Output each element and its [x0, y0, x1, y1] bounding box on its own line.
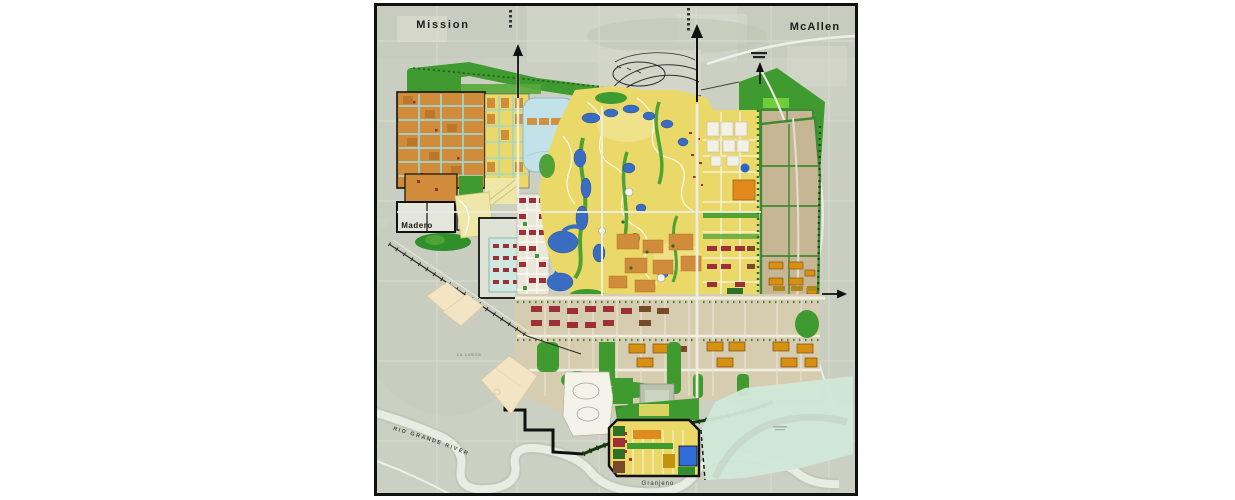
- granjeno-district: Granjeno: [609, 398, 699, 487]
- master-plan-map: RIO GRANDE RIVER: [377, 6, 855, 493]
- page: RIO GRANDE RIVER: [0, 0, 1235, 500]
- la-lomita-label: La Lomita: [457, 352, 481, 357]
- illegible-road-label: [751, 52, 767, 54]
- mission-label: Mission: [416, 19, 470, 31]
- east-grid-district: [703, 110, 759, 306]
- central-residential-village: [539, 86, 719, 310]
- mcallen-label: McAllen: [790, 21, 841, 33]
- illegible-area-label: [773, 426, 787, 427]
- madero-label: Madero: [401, 221, 432, 230]
- master-plan-map-frame: RIO GRANDE RIVER: [374, 3, 858, 496]
- granjeno-label: Granjeno: [642, 481, 675, 487]
- special-white-district: [563, 372, 613, 436]
